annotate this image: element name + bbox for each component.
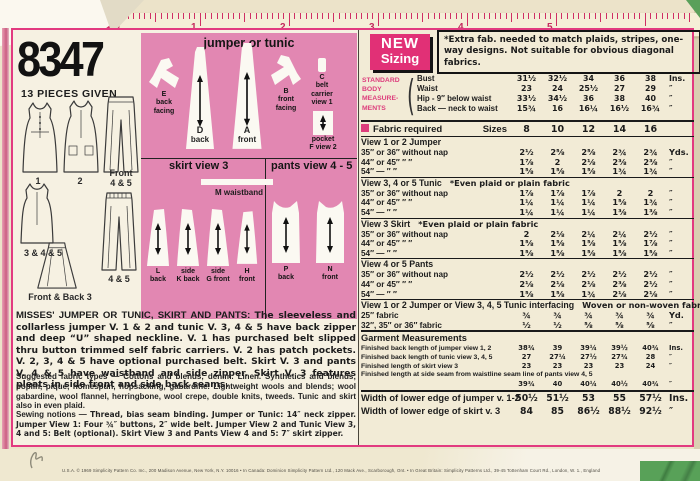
ruler-tick	[133, 13, 134, 19]
ruler-tick	[689, 13, 690, 22]
ruler-tick	[278, 13, 279, 19]
value-cell: 1⅝	[511, 290, 542, 300]
pattern-piece-B	[271, 55, 301, 87]
value-cell: 25½	[573, 84, 604, 94]
ruler-tick	[606, 13, 607, 19]
value-cell: 36	[573, 94, 604, 104]
skirt-view-label: skirt view 3	[169, 160, 228, 172]
envelope-bottom-edge	[0, 449, 700, 481]
ruler-tick	[550, 13, 551, 19]
value-cell: 29	[635, 84, 666, 94]
unit-cell: ″	[666, 380, 694, 389]
section-heading: View 3 Skirt*Even plaid or plain fabric	[361, 218, 694, 230]
section-heading-text: View 3, 4 or 5 Tunic	[361, 178, 442, 189]
ruler-tick	[612, 13, 613, 19]
ruler-tick	[189, 13, 190, 19]
value-cell: 1⅜	[635, 208, 666, 218]
value-cell: 2⅛	[635, 290, 666, 300]
ruler-tick	[155, 13, 156, 22]
ruler-tick	[200, 13, 201, 26]
ruler-tick	[217, 13, 218, 19]
pattern-piece-N	[313, 201, 347, 265]
unit-cell: ″	[666, 405, 694, 418]
piece-label-line: B	[263, 88, 309, 96]
ruler-tick	[322, 13, 323, 19]
value-cell: 1⅝	[542, 167, 573, 177]
value-cell: 28	[635, 353, 666, 362]
ruler-tick	[244, 13, 245, 22]
pieces-box-divider-h	[141, 158, 357, 159]
value-cell: ½	[542, 321, 573, 331]
ruler-tick	[678, 13, 679, 19]
ruler-tick	[422, 13, 423, 22]
value-cell: 27¾	[604, 353, 635, 362]
row-label: 35″ or 36″ without nap	[361, 270, 511, 280]
view-figure-label: Front & Back 3	[15, 292, 105, 302]
value-cell: 16	[542, 104, 573, 114]
ruler-tick	[556, 13, 557, 26]
value-cell: 53	[573, 392, 604, 405]
piece-label-line: E	[141, 91, 187, 99]
piece-label-line: front	[305, 274, 355, 282]
value-cell: 84	[511, 405, 542, 418]
view-figure-label: Front4 & 5	[99, 168, 143, 189]
ruler-tick	[300, 13, 301, 19]
piece-label-line: N	[305, 266, 355, 274]
ruler-tick	[139, 13, 140, 19]
row-label: 54″ — ″ ″	[361, 208, 511, 218]
figure-label-line: 2	[65, 176, 95, 186]
pattern-piece-P	[269, 201, 303, 265]
value-cell: 40¾	[635, 344, 666, 353]
new-sizing-badge: NEW Sizing	[370, 34, 430, 70]
value-cell: 1⅝	[573, 249, 604, 259]
row-label: 44″ or 45″ ″ ″	[361, 198, 511, 208]
row-label: 32″, 35″ or 36″ fabric	[361, 321, 511, 331]
waistband-piece	[201, 179, 273, 185]
row-label: 35″ or 36″ without nap	[361, 189, 511, 199]
ruler-tick	[328, 13, 329, 19]
ruler-tick	[528, 13, 529, 19]
unit-cell: ″	[666, 321, 694, 331]
ruler-tick	[211, 13, 212, 19]
unit-cell: ″	[666, 167, 694, 177]
value-cell: 16½	[604, 104, 635, 114]
ruler-tick	[445, 13, 446, 19]
ruler-tick	[662, 13, 663, 19]
garment-measurement-row: 39¾4040¼40½40¾″	[361, 380, 694, 389]
ruler-tick	[333, 13, 334, 22]
unit-cell: ″	[666, 362, 694, 371]
value-cell: 1¾	[604, 167, 635, 177]
value-cell: 1⅝	[573, 167, 604, 177]
ruler-tick	[261, 13, 262, 19]
value-cell: 40	[542, 380, 573, 389]
ruler-tick	[667, 13, 668, 19]
unit-cell: Ins.	[666, 344, 694, 353]
ruler-tick	[489, 13, 490, 19]
ruler-tick	[178, 13, 179, 19]
size-col: 16	[635, 124, 666, 135]
value-cell: 39½	[604, 344, 635, 353]
unit-cell: ″	[666, 353, 694, 362]
pattern-piece-K	[175, 209, 201, 267]
piece-label-line: facing	[141, 108, 187, 116]
ruler-tick	[356, 13, 357, 19]
piece-letter-label: Dback	[183, 125, 217, 144]
ruler-tick	[172, 13, 173, 19]
ruler-tick	[645, 13, 646, 26]
value-cell: 23	[604, 362, 635, 371]
ruler-tick	[461, 13, 462, 19]
lower-edge-row: Width of lower edge of jumper v. 1-250½5…	[361, 392, 694, 405]
ruler-tick	[272, 13, 273, 19]
fabric-required-row: 54″ — ″ ″1⅝1⅝1¾2⅛2⅛″	[361, 290, 694, 300]
row-label: 25″ fabric	[361, 311, 511, 321]
lower-edge-table: Width of lower edge of jumper v. 1-250½5…	[361, 390, 694, 418]
value-cell: 40½	[604, 380, 635, 389]
value-cell: 50½	[511, 392, 542, 405]
suggested-fabrics: Suggested fabric types — Cottons and ble…	[16, 372, 356, 411]
unit-cell: ″	[666, 290, 694, 300]
ruler-tick	[634, 13, 635, 19]
piece-label-line: F view 2	[305, 144, 341, 152]
copyright-fineprint: U.S.A. © 1969 Simplicity Pattern Co. Inc…	[62, 468, 690, 473]
ruler-tick	[478, 13, 479, 19]
value-cell: 1⅝	[542, 290, 573, 300]
figure-label-line: 4 & 5	[99, 178, 143, 188]
section-heading-text: View 4 or 5 Pants	[361, 259, 433, 270]
body-measurements-table: STANDARD BODY MEASURE- MENTS ( Bust31½32…	[361, 74, 694, 114]
row-label: Hip - 9″ below waist	[417, 94, 511, 104]
ruler-tick	[456, 13, 457, 19]
value-cell: 1¼	[573, 208, 604, 218]
value-cell: 15¾	[511, 104, 542, 114]
piece-label-line: C	[309, 74, 335, 82]
left-panel: 8347 13 PIECES GIVEN 12Front4 & 53 & 4 &…	[13, 30, 358, 445]
ruler-tick	[361, 13, 362, 19]
ruler-tick	[167, 13, 168, 19]
value-cell: 32½	[542, 74, 573, 84]
ruler-tick	[584, 13, 585, 19]
value-cell: ⅝	[573, 321, 604, 331]
section-note: *Even plaid or plain fabric	[418, 219, 538, 230]
piece-label-line: back	[261, 274, 311, 282]
background-corner-bottom	[640, 461, 700, 481]
value-cell: 1⅝	[511, 249, 542, 259]
garment-measurements-heading: Garment Measurements	[361, 330, 694, 344]
ruler-tick	[228, 13, 229, 19]
value-cell: 16¾	[635, 104, 666, 114]
ruler-tick	[623, 13, 624, 19]
value-cell: 31½	[511, 74, 542, 84]
row-label: Waist	[417, 84, 511, 94]
garment-measurement-row: Finished length of skirt view 3232323232…	[361, 362, 694, 371]
ruler-tick	[434, 13, 435, 19]
value-cell: 51½	[542, 392, 573, 405]
lower-edge-row: Width of lower edge of skirt v. 3848586½…	[361, 405, 694, 418]
badge-line2: Sizing	[370, 52, 430, 66]
envelope-edge-strip	[2, 28, 9, 465]
ruler-tick	[500, 13, 501, 19]
section-heading: View 3, 4 or 5 Tunic*Even plaid or plain…	[361, 177, 694, 189]
fabric-required-row: 54″ — ″ ″1⅝1⅝1⅝1⅝1⅝″	[361, 249, 694, 259]
piece-label-N: Nfront	[305, 266, 355, 283]
description-headline: MISSES' JUMPER OR TUNIC, SKIRT AND PANTS…	[16, 310, 250, 321]
pants-view-label: pants view 4 - 5	[271, 160, 352, 172]
unit-cell: ″	[666, 208, 694, 218]
value-cell: 23	[573, 362, 604, 371]
figure-label-line: Front	[99, 168, 143, 178]
row-label: Bust	[417, 74, 511, 84]
value-cell: 23	[511, 84, 542, 94]
ruler-tick	[233, 13, 234, 19]
size-col: 14	[604, 124, 635, 135]
value-cell: 39¼	[573, 344, 604, 353]
unit-cell: ″	[666, 94, 694, 104]
ruler-tick	[417, 13, 418, 19]
view-figure-4	[17, 183, 57, 245]
value-cell: 34½	[542, 94, 573, 104]
notions-label: Sewing notions —	[16, 410, 87, 419]
value-cell: 92½	[635, 405, 666, 418]
pattern-pieces-box: jumper or tunic skirt view 3 pants view …	[141, 33, 357, 319]
value-cell: ½	[511, 321, 542, 331]
section-heading-text: View 1 or 2 Jumper	[361, 137, 441, 148]
unit-cell: ″	[666, 104, 694, 114]
fabric-required-row: 54″ — ″ ″1¼1¼1¼1⅜1⅜″	[361, 208, 694, 218]
ruler-tick	[573, 13, 574, 19]
value-cell: 1¼	[511, 208, 542, 218]
value-cell: 16¼	[573, 104, 604, 114]
ruler-tick	[205, 13, 206, 19]
value-cell: 38¾	[511, 344, 542, 353]
sizes-label: Sizes	[483, 124, 511, 135]
piece-label-line: back	[141, 99, 187, 107]
ruler-tick	[350, 13, 351, 19]
ruler-tick	[345, 13, 346, 19]
row-label: 54″ — ″ ″	[361, 249, 511, 259]
ruler-tick	[506, 13, 507, 19]
ruler-tick	[383, 13, 384, 19]
piece-letter: D	[183, 125, 217, 135]
ruler-tick	[628, 13, 629, 19]
ruler-tick	[183, 13, 184, 19]
ruler-tick	[639, 13, 640, 19]
piece-label-P: Pback	[261, 266, 311, 283]
ruler-tick	[650, 13, 651, 19]
sewing-notions: Sewing notions — Thread, bias seam bindi…	[16, 410, 356, 438]
figure-label-line: 4 & 5	[101, 274, 137, 284]
value-cell: 1⅝	[635, 249, 666, 259]
pencil-squiggle	[24, 444, 60, 472]
fabric-required-row: 54″ — ″ ″1⅝1⅝1⅝1¾1¾″	[361, 167, 694, 177]
piece-label-C: Cbeltcarrierview 1	[309, 74, 335, 108]
row-label: 44″ or 45″ ″ ″	[361, 239, 511, 249]
value-cell: ⅝	[604, 321, 635, 331]
fabric-required-title: Fabric required	[373, 124, 442, 135]
ruler-tick	[306, 13, 307, 19]
sizing-panel: NEW Sizing *Extra fab. needed to match p…	[361, 30, 694, 445]
ruler-tick	[511, 13, 512, 22]
size-col: 10	[542, 124, 573, 135]
fabric-required-row: 32″, 35″ or 36″ fabric½½⅝⅝⅝″	[361, 321, 694, 331]
view-figure-1	[19, 102, 61, 174]
ruler-tick	[378, 13, 379, 26]
ruler-tick	[406, 13, 407, 19]
section-heading-text: View 3 Skirt	[361, 219, 410, 230]
ruler-tick	[595, 13, 596, 19]
brace-glyph: (	[407, 72, 415, 120]
ruler-tick	[250, 13, 251, 19]
ruler-tick	[294, 13, 295, 19]
value-cell: 1¾	[573, 290, 604, 300]
ruler-tick	[150, 13, 151, 19]
piece-label-line: front	[263, 96, 309, 104]
ruler-tick	[144, 13, 145, 19]
ruler-tick	[484, 13, 485, 19]
ruler-tick	[161, 13, 162, 19]
view-figure-2	[61, 100, 101, 174]
value-cell: 24	[635, 362, 666, 371]
unit-cell: ″	[666, 84, 694, 94]
ruler-tick	[617, 13, 618, 19]
value-cell: 27	[511, 353, 542, 362]
size-col: 8	[511, 124, 542, 135]
ruler-tick	[411, 13, 412, 19]
row-label: Back — neck to waist	[417, 104, 511, 114]
value-cell: 27½	[573, 353, 604, 362]
ruler-tick	[395, 13, 396, 19]
pattern-number: 8347	[17, 32, 102, 88]
row-label: Finished length of skirt view 3	[361, 362, 511, 371]
pattern-piece-E	[149, 58, 179, 90]
row-label: Width of lower edge of skirt v. 3	[361, 405, 511, 418]
piece-label-F: pocketF view 2	[305, 136, 341, 153]
value-cell: 33½	[511, 94, 542, 104]
view-figure-5	[99, 192, 139, 272]
row-label: 35″ or 36″ without nap	[361, 230, 511, 240]
figure-label-line: Front & Back 3	[15, 292, 105, 302]
value-cell: 38	[635, 74, 666, 84]
ruler-tick	[523, 13, 524, 19]
ruler-tick	[400, 13, 401, 19]
value-cell: 40	[635, 94, 666, 104]
size-col: 12	[573, 124, 604, 135]
value-cell: 1⅝	[604, 249, 635, 259]
ruler-tick	[673, 13, 674, 19]
value-cell: 27¼	[542, 353, 573, 362]
ruler-tick	[317, 13, 318, 19]
ruler-tick	[472, 13, 473, 19]
value-cell: 57½	[635, 392, 666, 405]
value-cell: 27	[604, 84, 635, 94]
unit-cell: Ins.	[666, 392, 694, 405]
piece-label-line: P	[261, 266, 311, 274]
row-label: 35″ or 36″ without nap	[361, 148, 511, 158]
fabric-required-sections: View 1 or 2 Jumper35″ or 36″ without nap…	[361, 136, 694, 418]
fabric-required-header: Fabric required Sizes 8 10 12 14 16	[361, 120, 694, 135]
ruler-tick	[561, 13, 562, 19]
column-divider	[358, 30, 359, 445]
piece-label-line: pocket	[305, 136, 341, 144]
ruler-tick	[467, 13, 468, 26]
ruler-tick	[194, 13, 195, 19]
value-cell: 39¾	[511, 380, 542, 389]
pattern-piece-L	[145, 209, 171, 267]
badge-line1: NEW	[370, 36, 430, 52]
value-cell: 34	[573, 74, 604, 84]
ruler-tick	[450, 13, 451, 19]
pattern-piece-F	[313, 111, 333, 135]
piece-label-line: belt	[309, 82, 335, 90]
value-cell: 1¼	[542, 208, 573, 218]
ruler-tick	[495, 13, 496, 19]
value-cell: 23	[511, 362, 542, 371]
piece-letter-label: Afront	[229, 125, 265, 144]
value-cell: 55	[604, 392, 635, 405]
ruler-tick	[256, 13, 257, 19]
envelope-content: 8347 13 PIECES GIVEN 12Front4 & 53 & 4 &…	[11, 28, 694, 447]
ruler-tick	[222, 13, 223, 19]
unit-cell: Ins.	[666, 74, 694, 84]
ruler-tick	[267, 13, 268, 19]
garment-measurement-row: Finished back length of jumper view 1, 2…	[361, 344, 694, 353]
pattern-piece-H	[235, 209, 259, 267]
ruler-tick	[372, 13, 373, 19]
pattern-envelope-back: 12345 Measure 8347 13 PIECES GIVEN 12Fro…	[0, 0, 700, 481]
pattern-piece-D: Dback	[183, 47, 217, 153]
pattern-piece-A: Afront	[229, 43, 265, 153]
value-cell: 40¾	[635, 380, 666, 389]
ruler-tick	[289, 13, 290, 26]
section-heading-text: View 1 or 2 Jumper or View 3, 4, 5 Tunic…	[361, 300, 574, 311]
value-cell: 1⅝	[511, 167, 542, 177]
view-figure-6	[35, 242, 79, 290]
value-cell: 24	[542, 84, 573, 94]
row-label: 44″ or 45″ ″ ″	[361, 158, 511, 168]
row-label: 54″ — ″ ″	[361, 167, 511, 177]
ruler-tick	[656, 13, 657, 19]
piece-label-line: facing	[263, 105, 309, 113]
ruler-tick	[389, 13, 390, 19]
value-cell: 1⅜	[604, 208, 635, 218]
value-cell: 40¼	[573, 380, 604, 389]
ruler-tick	[239, 13, 240, 19]
row-label: 44″ or 45″ ″ ″	[361, 280, 511, 290]
value-cell: 2⅛	[604, 290, 635, 300]
waistband-label: M waistband	[189, 188, 289, 197]
fabrics-label: Suggested fabric types —	[16, 372, 119, 381]
row-label: Width of lower edge of jumper v. 1-2	[361, 392, 511, 405]
ruler-tick	[517, 13, 518, 19]
value-cell: 38	[604, 94, 635, 104]
value-cell: 85	[542, 405, 573, 418]
pattern-piece-G	[205, 209, 231, 267]
ruler-tick	[578, 13, 579, 19]
value-cell: 86½	[573, 405, 604, 418]
view-figure-3	[101, 96, 141, 174]
ruler-tick	[545, 13, 546, 19]
ruler-tick	[428, 13, 429, 19]
ruler-tick	[567, 13, 568, 19]
value-cell: 1¾	[635, 167, 666, 177]
pink-square-bullet	[361, 124, 369, 132]
garment-row-wrapped-label: Finished length at side seam from waistl…	[361, 371, 694, 380]
unit-cell: ″	[666, 249, 694, 259]
ruler-tick	[339, 13, 340, 19]
piece-label-B: Bfrontfacing	[263, 88, 309, 113]
